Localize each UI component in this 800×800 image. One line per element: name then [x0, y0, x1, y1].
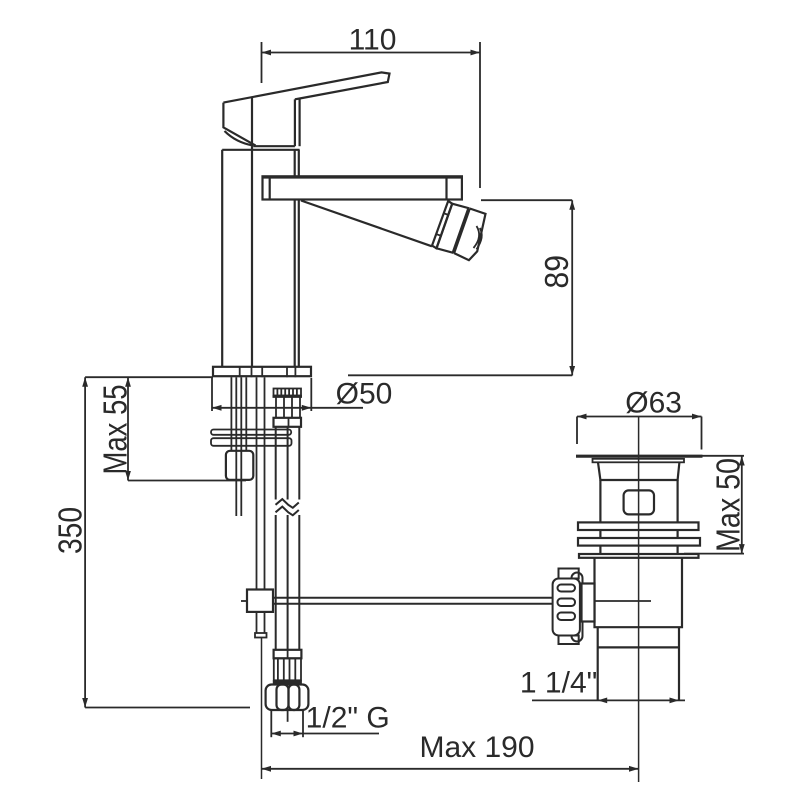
svg-text:1 1/4": 1 1/4"	[520, 667, 597, 700]
svg-text:1/2" G: 1/2" G	[306, 702, 390, 735]
svg-text:Ø50: Ø50	[336, 378, 393, 411]
svg-text:Ø63: Ø63	[625, 387, 682, 420]
svg-text:Max 50: Max 50	[710, 458, 747, 552]
svg-text:89: 89	[538, 255, 575, 289]
svg-text:350: 350	[51, 507, 88, 554]
svg-text:110: 110	[349, 23, 397, 56]
svg-text:Max 55: Max 55	[97, 385, 134, 475]
svg-text:Max 190: Max 190	[419, 731, 534, 764]
